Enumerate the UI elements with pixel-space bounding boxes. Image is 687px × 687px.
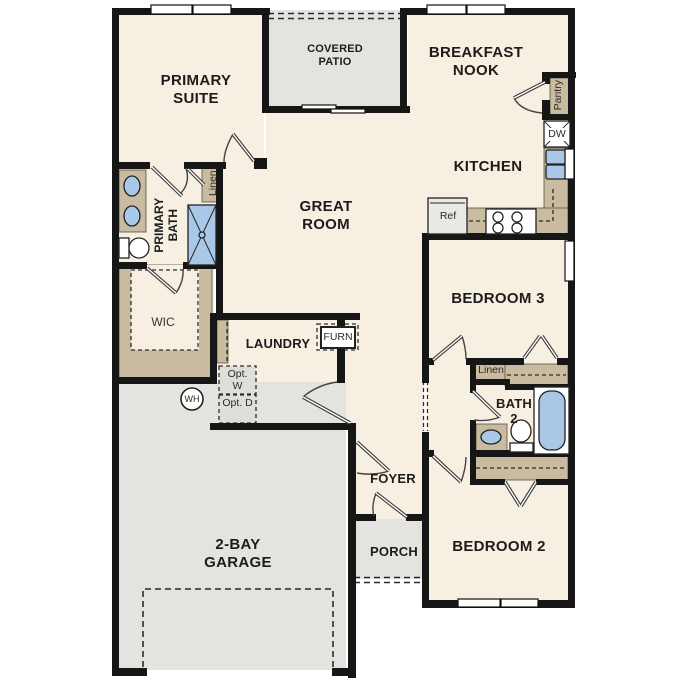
- room-label-breakfast-nook: BREAKFAST NOOK: [421, 44, 531, 79]
- room-label-porch: PORCH: [364, 544, 424, 559]
- furnace-label: FURN: [321, 331, 355, 343]
- vanity-sink: [124, 206, 140, 226]
- window: [565, 241, 574, 281]
- opt-washer-label: Opt. W: [222, 368, 253, 393]
- room-label-bedroom3: BEDROOM 3: [428, 290, 568, 308]
- hall-opening: [424, 381, 428, 431]
- window: [458, 599, 500, 607]
- room-label-primary-bath: PRIMARY BATH: [152, 188, 180, 262]
- primary-toilet: [119, 238, 149, 258]
- bathtub: [534, 387, 569, 454]
- bath2-sink: [481, 430, 501, 444]
- window: [193, 5, 231, 14]
- room-label-wic: WIC: [143, 315, 183, 329]
- room-label-kitchen: KITCHEN: [428, 158, 548, 176]
- vanity-sink: [124, 176, 140, 196]
- room-label-laundry: LAUNDRY: [238, 336, 318, 351]
- floor-plan: PRIMARY SUITE COVERED PATIO BREAKFAST NO…: [0, 0, 687, 687]
- closet-label-pantry: Pantry: [552, 75, 564, 115]
- window: [565, 149, 574, 179]
- shower: [188, 205, 216, 265]
- window: [467, 5, 505, 14]
- patio-slider-panel: [331, 109, 365, 113]
- refrigerator-label: Ref: [430, 210, 466, 222]
- window: [501, 599, 538, 607]
- laundry-cabinet: [217, 320, 228, 363]
- wic-floor: [131, 265, 199, 350]
- room-label-foyer: FOYER: [363, 471, 423, 486]
- window: [427, 5, 466, 14]
- floor-plan-drawing: [0, 0, 687, 687]
- room-label-great-room: GREAT ROOM: [291, 198, 361, 233]
- stove: [486, 209, 536, 234]
- water-heater-label: WH: [181, 394, 203, 405]
- room-label-garage: 2-BAY GARAGE: [188, 536, 288, 571]
- room-label-bedroom2: BEDROOM 2: [429, 538, 569, 556]
- room-label-covered-patio: COVERED PATIO: [295, 43, 375, 69]
- kitchen-sink-basin: [546, 165, 565, 179]
- window: [151, 5, 192, 14]
- room-label-bath2: BATH 2: [492, 396, 536, 427]
- opt-dryer-label: Opt. D: [222, 397, 253, 409]
- closet-label-linen-primary: Linen: [207, 163, 219, 203]
- room-label-primary-suite: PRIMARY SUITE: [146, 72, 246, 107]
- closet-label-linen-hall: Linen: [472, 364, 510, 376]
- dishwasher-label: DW: [544, 128, 570, 140]
- kitchen-sink-basin: [546, 150, 565, 164]
